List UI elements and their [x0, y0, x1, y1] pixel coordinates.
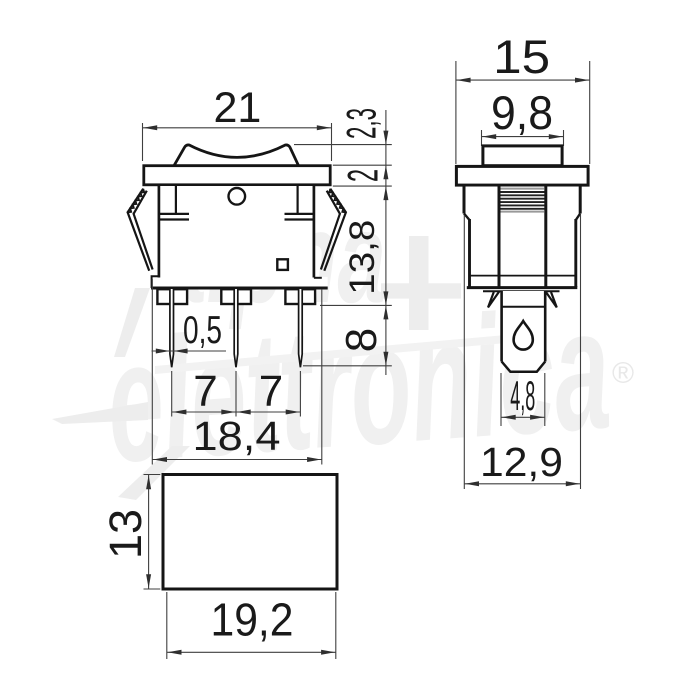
- svg-text:12,9: 12,9: [480, 439, 563, 485]
- svg-text:2,3: 2,3: [338, 108, 385, 139]
- svg-text:2: 2: [339, 169, 387, 182]
- svg-text:8: 8: [337, 328, 386, 352]
- svg-text:13: 13: [100, 509, 151, 559]
- svg-text:21: 21: [213, 84, 261, 132]
- svg-text:15: 15: [493, 30, 550, 83]
- svg-text:7: 7: [193, 367, 217, 416]
- svg-text:®: ®: [612, 357, 634, 390]
- svg-text:7: 7: [259, 367, 283, 416]
- svg-text:9,8: 9,8: [491, 86, 553, 139]
- svg-text:18,4: 18,4: [193, 413, 281, 459]
- svg-text:19,2: 19,2: [211, 594, 294, 646]
- svg-text:4,8: 4,8: [510, 372, 535, 419]
- svg-text:0,5: 0,5: [183, 309, 222, 352]
- svg-text:13,8: 13,8: [343, 220, 382, 295]
